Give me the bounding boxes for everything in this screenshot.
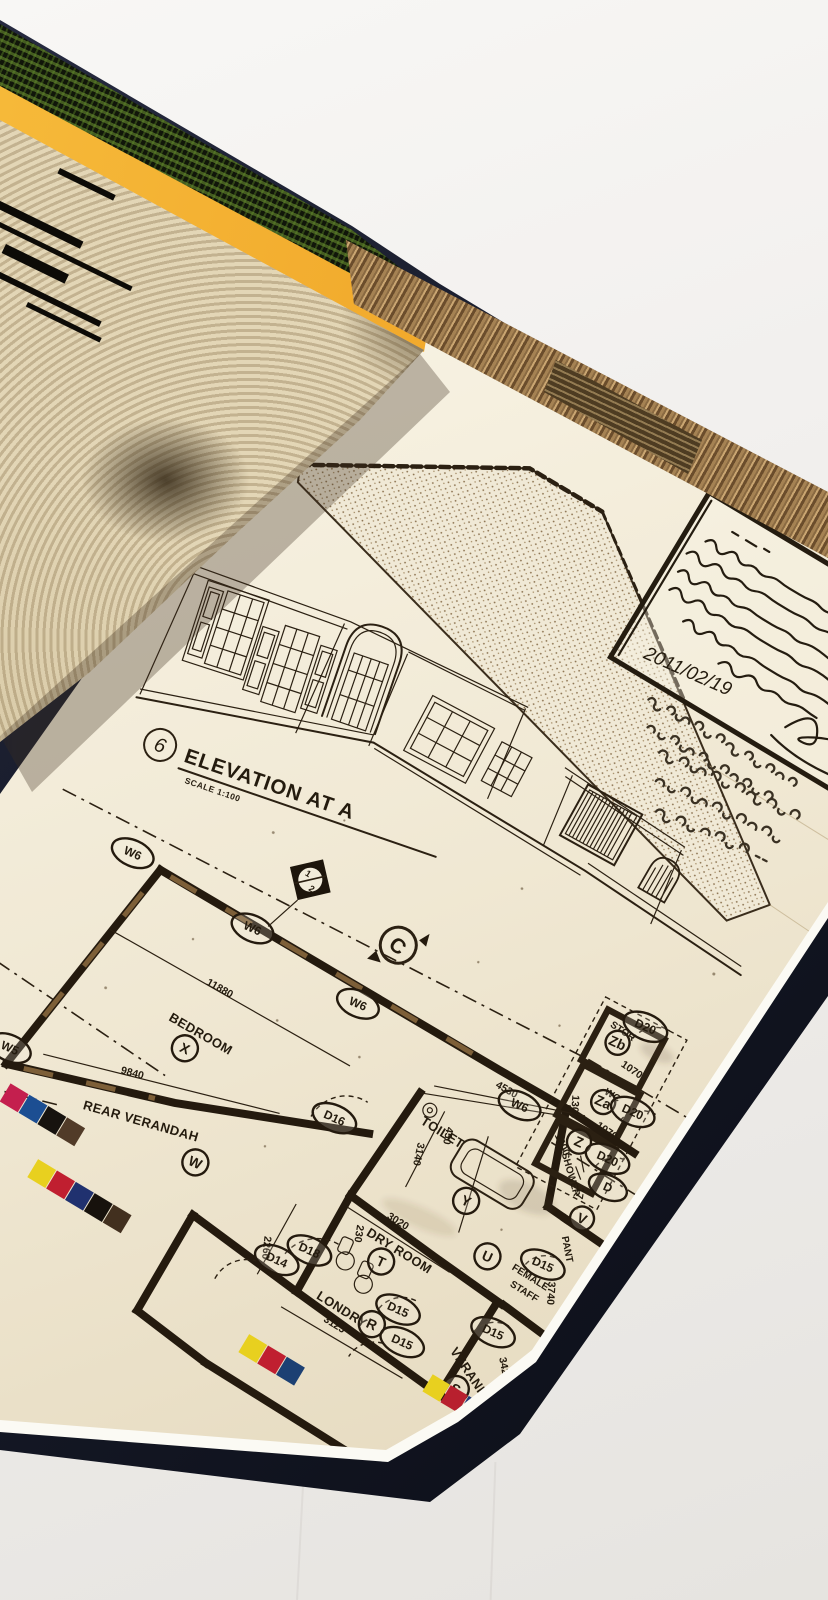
drawing-number: 6	[151, 734, 170, 759]
door-tags: D16 D14 D18 D15 D15 D15 D15 D20 D20 D20 …	[236, 905, 697, 1413]
elevation-arched-door	[322, 618, 409, 735]
dim-1300: 1300	[568, 1095, 582, 1119]
grid-bubble-c: C	[367, 915, 431, 979]
dim-3140: 3140	[410, 1142, 427, 1167]
room-pantry: PANT	[559, 1235, 575, 1263]
elevation-window-small	[481, 742, 532, 797]
photo-of-open-book: 6 ELEVATION AT A SCALE 1:100 2011/02/19	[0, 0, 828, 1600]
backdrop-seam	[490, 1462, 497, 1600]
title-block: 6 ELEVATION AT A SCALE 1:100	[135, 725, 446, 870]
dim-11880: 11880	[204, 976, 235, 1000]
dim-230: 230	[351, 1224, 366, 1243]
photo-glitch-bar	[0, 196, 83, 249]
dim-9840: 9840	[119, 1064, 145, 1082]
